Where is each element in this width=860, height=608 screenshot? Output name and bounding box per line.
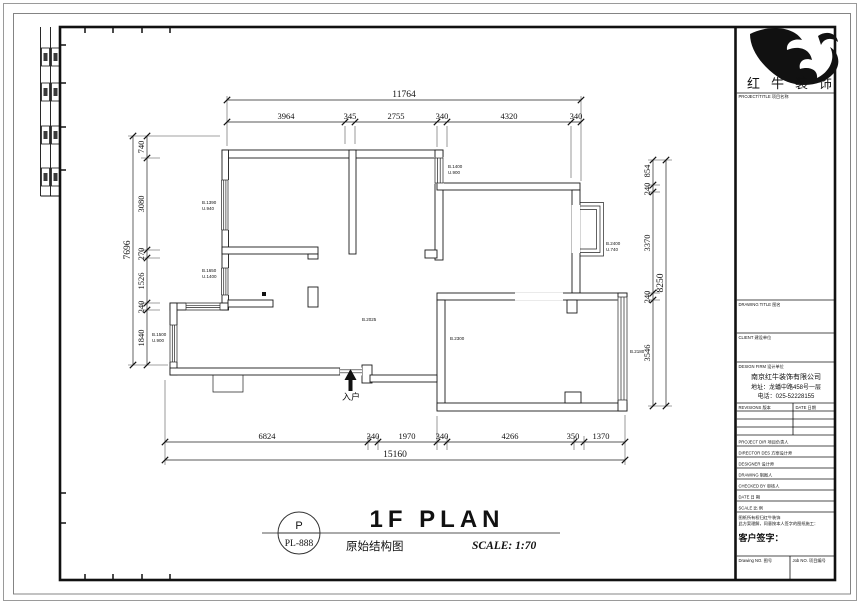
dim-right-seg-0: 854 — [642, 164, 652, 178]
detail-bubble-code: PL-888 — [285, 539, 314, 549]
row-drawing: DRAWING 制图人 — [739, 472, 774, 479]
detail-bubble-letter: P — [295, 520, 302, 532]
dim-bottom-seg-2: 1970 — [399, 431, 416, 441]
dim-top-seg-5: 340 — [570, 111, 583, 121]
company-logo-text: 红牛装饰 — [747, 76, 843, 91]
company-name: 南京红牛装饰有限公司 — [751, 372, 821, 381]
win-room-right-label: B.2180 — [630, 349, 645, 354]
row-scale: SCALE 比 例 — [739, 505, 763, 512]
column-dot — [262, 292, 266, 296]
dim-top-seg-0: 3964 — [278, 111, 296, 121]
row-director: DIRECTOR DES 方案设计师 — [739, 450, 793, 457]
floor-plan-walls — [170, 150, 627, 411]
dim-bottom-seg-5: 350 — [567, 431, 580, 441]
plan-title: 1F PLAN — [369, 506, 504, 533]
revisions-label: REVISIONS 版本 — [739, 404, 772, 411]
binding-strip — [41, 27, 61, 196]
hall-label: B.2025 — [362, 317, 377, 322]
win-left-mid-label-1: B.1650 — [202, 268, 217, 273]
dim-bottom-seg-3: 340 — [436, 431, 449, 441]
drawing-no-label: Drawing NO. 图号 — [739, 558, 773, 564]
win-left-mid-label-2: U.1400 — [202, 274, 217, 279]
dim-top-seg-2: 2755 — [388, 111, 405, 121]
bay-window-opening — [572, 205, 581, 253]
row-designer: DESIGNER 设计师 — [739, 461, 775, 468]
row-date: DATE 日 期 — [739, 495, 761, 501]
company-phone: 电话：025-52228155 — [758, 392, 815, 400]
scale-text: SCALE: 1:70 — [472, 540, 536, 552]
dim-top-seg-3: 340 — [436, 111, 449, 121]
dim-left-overall: 7696 — [123, 240, 133, 259]
dim-top-seg-4: 4320 — [501, 111, 518, 121]
note-line-1: 图纸所有权归红牛装饰 — [739, 514, 781, 521]
fold-marks — [61, 28, 170, 579]
door-room-label: B.2300 — [450, 336, 465, 341]
drawing-title-label: DRAWING TITLE 图名 — [739, 301, 781, 308]
dim-right-seg-1: 240 — [642, 183, 652, 196]
dim-bottom-seg-1: 340 — [367, 431, 380, 441]
title-block: 红牛装饰 PROJECT/TITLE 项目名称 DRAWING TITLE — [737, 28, 843, 580]
win-porch-label-2: U.900 — [152, 338, 165, 343]
dim-right-seg-2: 3370 — [642, 235, 652, 252]
porch-stub — [213, 375, 243, 392]
dim-bottom-seg-4: 4266 — [502, 431, 519, 441]
dim-left-seg-0: 740 — [136, 141, 146, 154]
dim-left-seg-3: 1526 — [136, 273, 146, 290]
floor-plan-canvas: 11764 3964 345 2755 340 4320 340 7696 74… — [0, 0, 860, 608]
dim-bottom-overall: 15160 — [383, 450, 407, 460]
row-project-dir: PROJECT DIR 项目负责人 — [739, 439, 790, 446]
win-top-mid-label-2: U.900 — [448, 170, 461, 175]
row-checked-by: CHECKED BY 审核人 — [739, 483, 781, 490]
company-address: 地址：龙蟠中路458号一层 — [751, 383, 821, 391]
dim-bottom-seg-6: 1370 — [593, 431, 610, 441]
job-no-label: Job NO. 项目编号 — [793, 557, 826, 564]
sign-label: 客户签字： — [738, 532, 784, 543]
project-title-label: PROJECT/TITLE 项目名称 — [739, 93, 789, 100]
dim-left-seg-1: 3080 — [136, 196, 146, 213]
win-left-top-label-1: B.1390 — [202, 200, 217, 205]
dim-left-seg-2: 270 — [136, 248, 146, 261]
dim-right-overall: 8250 — [656, 273, 666, 292]
win-top-mid-label-1: B.1400 — [448, 164, 463, 169]
dim-top-overall: 11764 — [392, 90, 416, 100]
dim-bottom-seg-0: 6824 — [259, 431, 277, 441]
drawing-sheet: 11764 3964 345 2755 340 4320 340 7696 74… — [0, 0, 860, 608]
bay-window — [580, 203, 604, 257]
plan-subtitle: 原始结构图 — [346, 539, 404, 553]
dim-top-seg-1: 345 — [344, 111, 357, 121]
date-col-label: DATE 日期 — [796, 405, 816, 411]
client-label: CLIENT 建设单位 — [739, 334, 772, 341]
win-bay-label-2: U.740 — [606, 247, 619, 252]
dim-left-seg-4: 240 — [136, 301, 146, 314]
design-firm-label: DESIGN FIRM 设计单位 — [739, 363, 784, 370]
title-bar: P PL-888 1F PLAN 原始结构图 SCALE: 1:70 — [262, 506, 560, 554]
note-line-2: 此方案理解，同意按本人签字的图纸施工： — [739, 520, 819, 527]
win-left-top-label-2: U.940 — [202, 206, 215, 211]
win-porch-label-1: B.1500 — [152, 332, 167, 337]
win-bay-label-1: B.2400 — [606, 241, 621, 246]
windows — [169, 158, 627, 401]
dim-right-seg-3: 240 — [642, 291, 652, 304]
dim-left-seg-5: 1840 — [136, 330, 146, 347]
entry-label: 入户 — [342, 391, 360, 402]
